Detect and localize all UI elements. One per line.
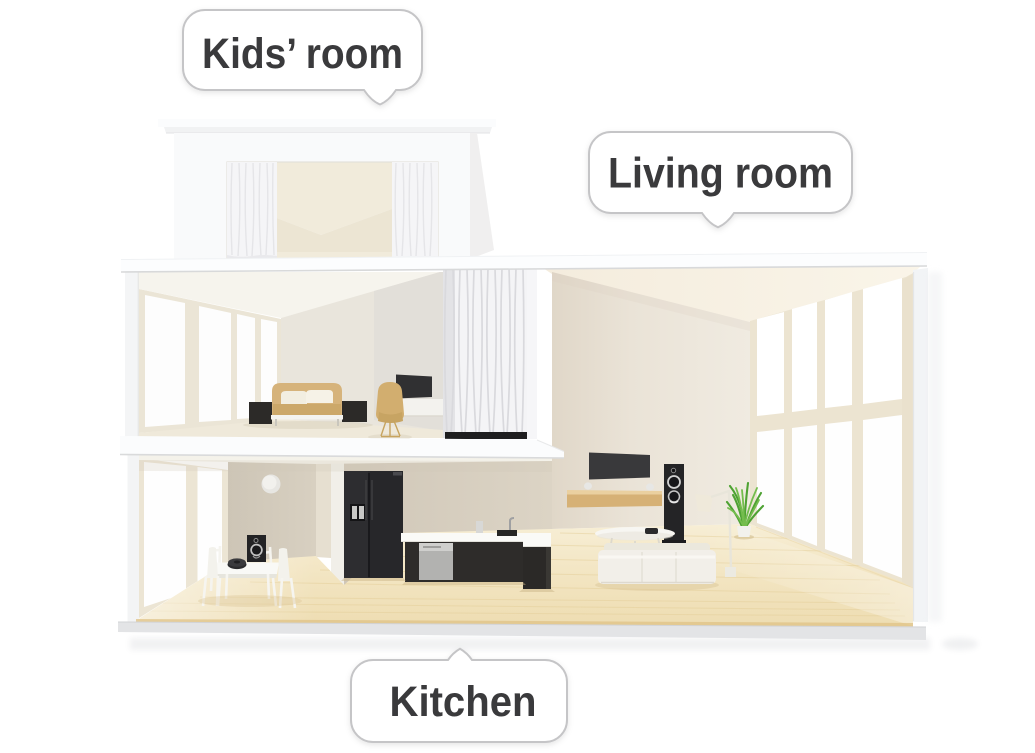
svg-text:Kitchen: Kitchen (390, 678, 537, 726)
svg-text:Kids’ room: Kids’ room (202, 30, 403, 78)
svg-text:Living room: Living room (608, 150, 833, 198)
